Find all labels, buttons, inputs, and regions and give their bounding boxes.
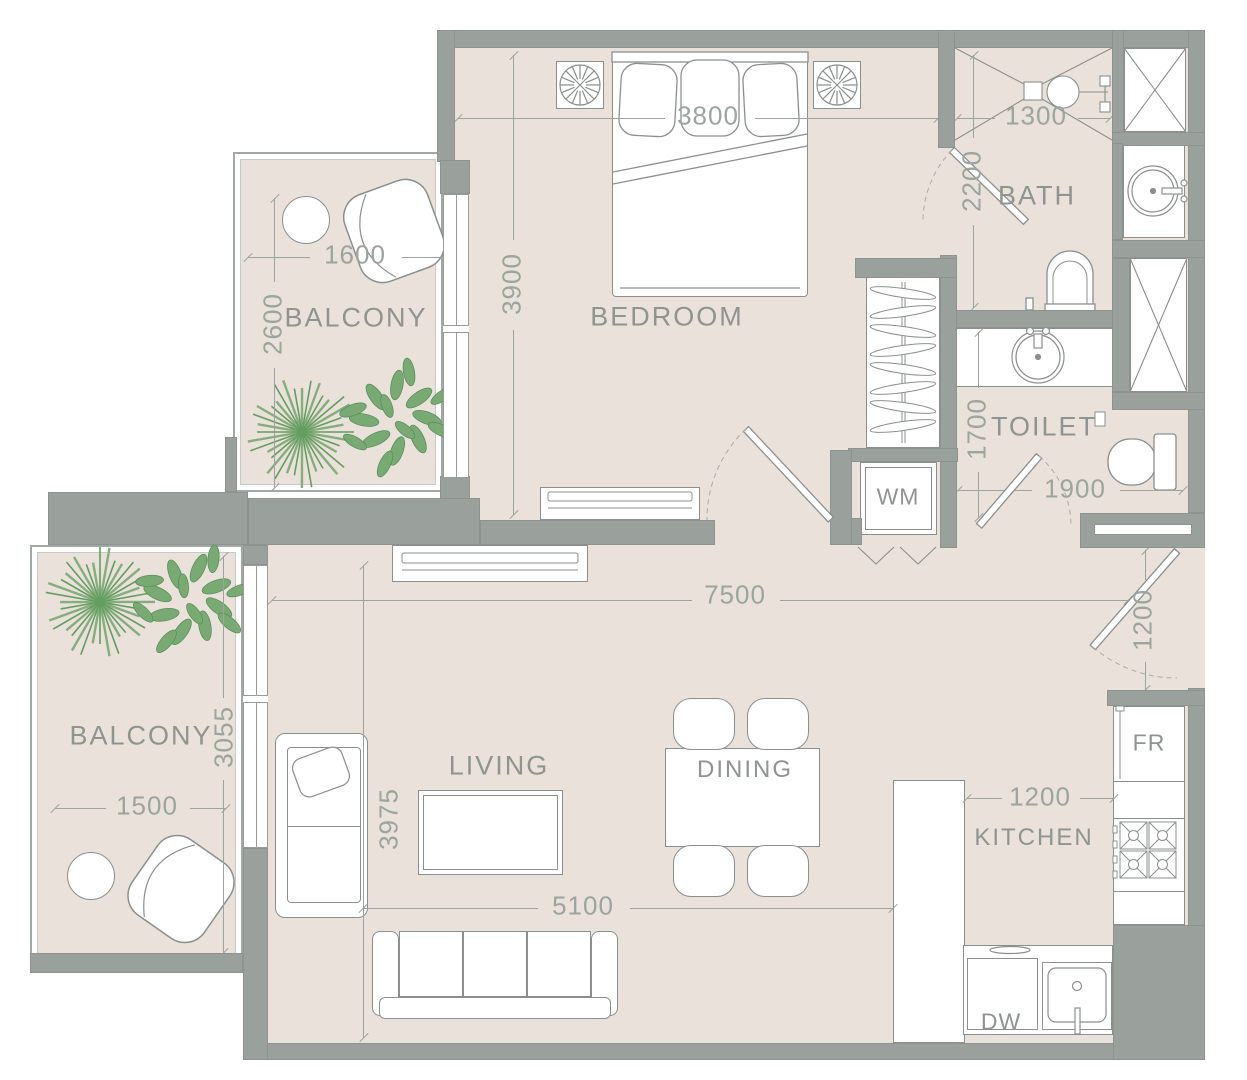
room-label-bedroom: BEDROOM (590, 302, 744, 333)
dim-balcony-upper-depth: 2600 (258, 293, 289, 355)
label-washing-machine: WM (877, 484, 920, 511)
dim-living-depth: 3975 (374, 788, 405, 850)
bedroom-door (707, 427, 833, 522)
wm-bifold-door (858, 547, 936, 564)
label-fridge: FR (1133, 730, 1166, 757)
dim-bath-depth: 2200 (957, 150, 988, 212)
dim-toilet-depth: 1700 (962, 398, 993, 460)
dim-balcony-lower-depth: 3055 (209, 706, 240, 768)
room-label-bath: BATH (998, 181, 1076, 212)
room-label-dining: DINING (697, 756, 793, 784)
dim-bath-width: 1300 (1005, 101, 1067, 132)
label-dishwasher: DW (981, 1009, 1021, 1036)
dim-hall-total-width: 7500 (704, 580, 766, 611)
dim-bedroom-depth: 3900 (497, 253, 528, 315)
room-label-toilet: TOILET (991, 412, 1097, 443)
dim-toilet-width: 1900 (1044, 474, 1106, 505)
dim-kitchen-width: 1200 (1009, 782, 1071, 813)
dim-balcony-upper-width: 1600 (324, 240, 386, 271)
room-label-living: LIVING (449, 751, 550, 782)
dim-balcony-lower-width: 1500 (116, 791, 178, 822)
room-label-balcony-upper: BALCONY (284, 303, 427, 334)
room-label-balcony-lower: BALCONY (69, 721, 212, 752)
dim-entry-width: 1200 (1128, 589, 1159, 651)
dim-living-width: 5100 (552, 891, 614, 922)
room-label-kitchen: KITCHEN (974, 824, 1093, 852)
floor-plan: BEDROOM BATH TOILET BALCONY BALCONY LIVI… (0, 0, 1247, 1080)
dim-bedroom-width: 3800 (677, 101, 739, 132)
doors-layer (0, 0, 1247, 1080)
